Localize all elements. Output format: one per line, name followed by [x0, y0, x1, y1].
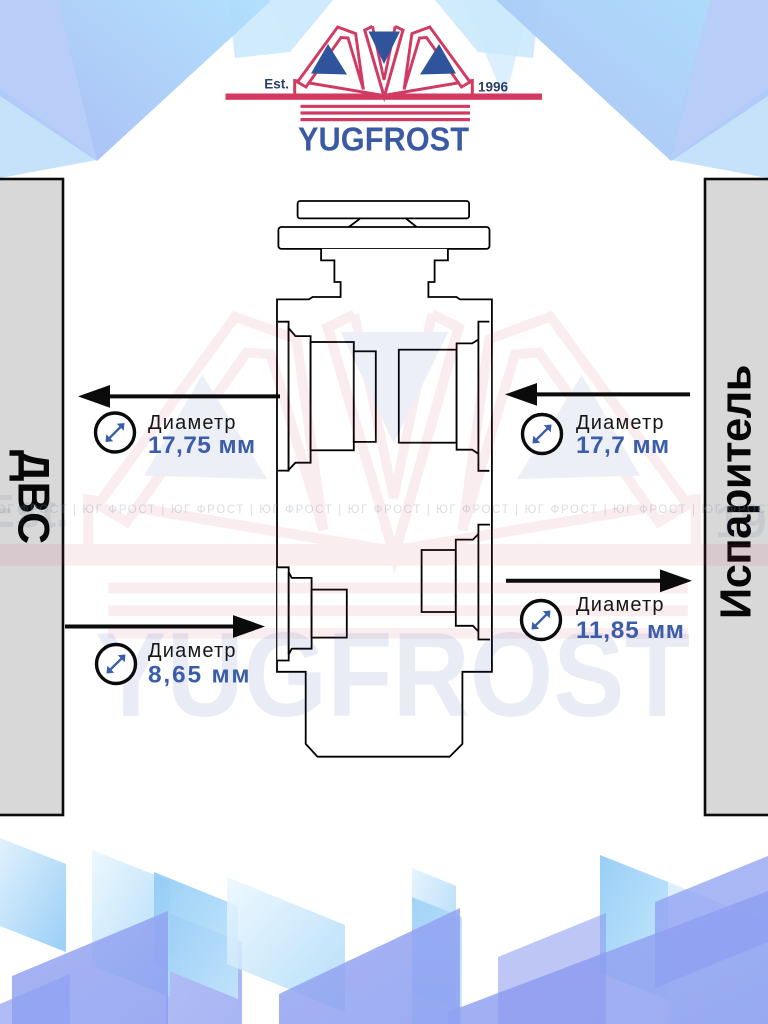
- svg-text:YUGFROST: YUGFROST: [298, 121, 469, 158]
- svg-text:Диаметр: Диаметр: [576, 594, 665, 616]
- svg-text:8,65 мм: 8,65 мм: [148, 662, 251, 689]
- svg-text:Диаметр: Диаметр: [148, 412, 237, 434]
- svg-text:ЮГ ФРОСТ | ЮГ ФРОСТ | ЮГ Ф: ЮГ ФРОСТ | ЮГ ФРОСТ | ЮГ ФРОСТ | ЮГ ФРОС…: [0, 504, 768, 516]
- svg-text:Диаметр: Диаметр: [576, 412, 665, 434]
- svg-text:17,7 мм: 17,7 мм: [576, 432, 670, 459]
- svg-text:Est.: Est.: [264, 77, 289, 92]
- svg-text:11,85 мм: 11,85 мм: [576, 617, 685, 644]
- svg-text:1996: 1996: [478, 80, 509, 95]
- svg-text:Испаритель: Испаритель: [712, 365, 760, 619]
- svg-text:Диаметр: Диаметр: [148, 640, 237, 662]
- svg-text:17,75 мм: 17,75 мм: [148, 432, 256, 459]
